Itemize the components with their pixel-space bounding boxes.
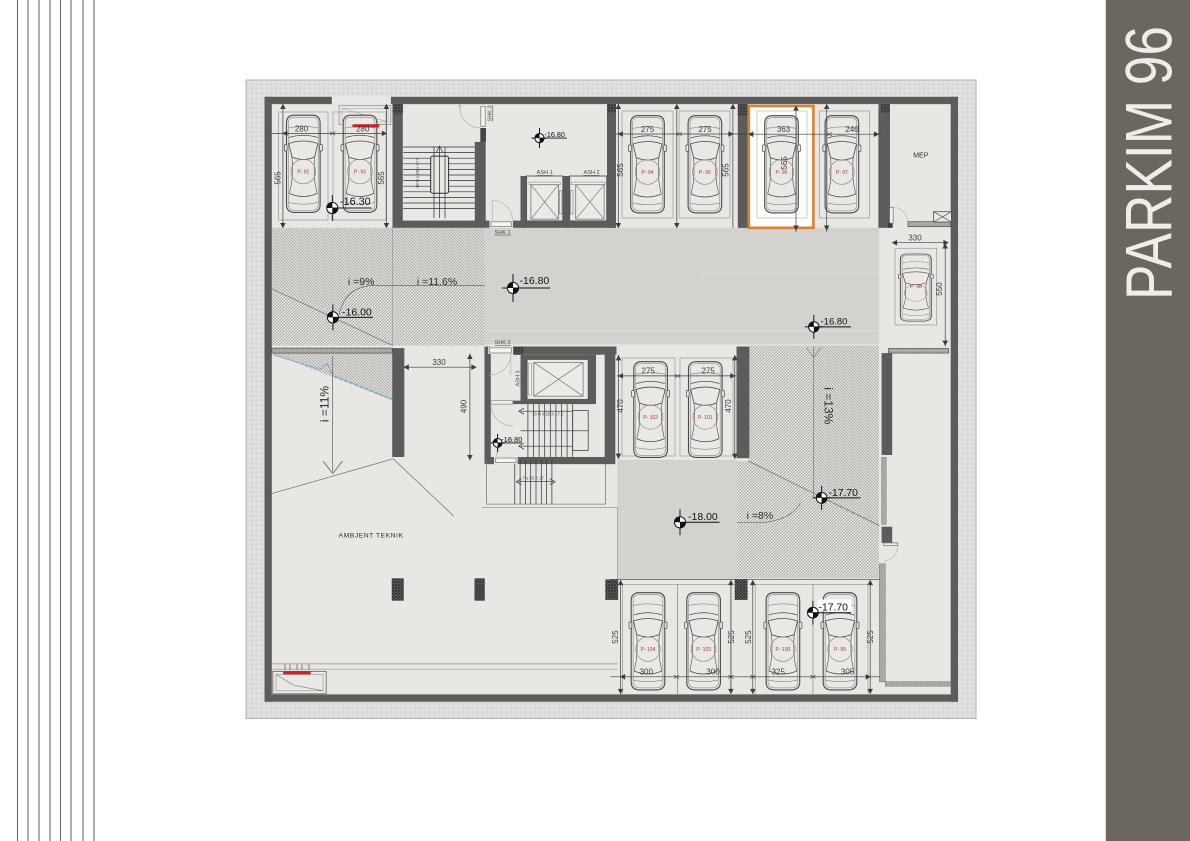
svg-text:ASH 2: ASH 2 [584, 170, 600, 176]
svg-text:P- 95: P- 95 [699, 170, 711, 176]
svg-text:P- 103: P- 103 [696, 647, 711, 653]
svg-text:-17.70: -17.70 [829, 488, 859, 499]
svg-text:325: 325 [772, 668, 786, 677]
svg-text:-18.00: -18.00 [688, 511, 718, 523]
svg-text:550: 550 [935, 282, 944, 296]
svg-text:AMBJENT TEKNIK: AMBJENT TEKNIK [339, 533, 404, 540]
svg-text:565: 565 [616, 163, 625, 177]
svg-text:300: 300 [640, 668, 654, 677]
svg-text:-16.80: -16.80 [545, 130, 565, 139]
svg-text:P- 101: P- 101 [698, 415, 713, 421]
svg-text:525: 525 [744, 630, 753, 644]
svg-text:565: 565 [780, 156, 789, 170]
svg-text:470: 470 [724, 399, 733, 413]
svg-text:7 x 28 X 17: 7 x 28 X 17 [523, 476, 545, 481]
svg-text:18 R x 28 x 17.5: 18 R x 28 x 17.5 [415, 157, 420, 188]
svg-text:275: 275 [642, 367, 656, 376]
svg-text:P- 97: P- 97 [836, 170, 848, 176]
svg-text:490: 490 [459, 399, 468, 413]
svg-text:565: 565 [377, 171, 386, 185]
svg-text:275: 275 [698, 125, 712, 134]
svg-text:525: 525 [866, 630, 875, 644]
svg-text:363: 363 [777, 125, 791, 134]
svg-text:P- 99: P- 99 [834, 647, 846, 653]
svg-text:SHK 1: SHK 1 [495, 230, 511, 236]
svg-text:-16.80: -16.80 [821, 316, 848, 327]
svg-text:-16.00: -16.00 [342, 306, 372, 318]
svg-text:240: 240 [845, 125, 859, 134]
svg-text:ASH 1: ASH 1 [537, 170, 553, 176]
svg-text:P- 93: P- 93 [354, 170, 366, 176]
svg-text:300: 300 [706, 668, 720, 677]
svg-text:470: 470 [616, 399, 625, 413]
svg-text:ASH 3: ASH 3 [516, 370, 522, 386]
svg-text:P- 92: P- 92 [297, 170, 309, 176]
svg-text:i =8%: i =8% [747, 510, 774, 522]
svg-text:SHK 3: SHK 3 [488, 105, 494, 121]
svg-text:SHK 2: SHK 2 [495, 340, 511, 346]
svg-text:-16.80: -16.80 [520, 275, 550, 287]
svg-text:MEP: MEP [913, 153, 929, 160]
svg-text:280: 280 [356, 124, 370, 133]
svg-text:18 R x 28 X 17.5: 18 R x 28 X 17.5 [532, 411, 564, 416]
svg-text:-17.70: -17.70 [819, 602, 849, 613]
svg-text:-16.80: -16.80 [501, 435, 522, 444]
svg-text:-16.30: -16.30 [340, 196, 371, 208]
svg-text:PARKIM 96: PARKIM 96 [1112, 26, 1186, 300]
svg-text:525: 525 [727, 630, 736, 644]
svg-text:P- 98: P- 98 [910, 284, 922, 290]
svg-text:275: 275 [641, 125, 655, 134]
svg-text:P- 94: P- 94 [642, 170, 654, 176]
svg-text:305: 305 [841, 668, 855, 677]
svg-text:i =13%: i =13% [822, 387, 836, 424]
svg-text:i =11%: i =11% [318, 386, 332, 422]
svg-text:i =9%: i =9% [348, 276, 375, 288]
svg-text:525: 525 [611, 630, 620, 644]
svg-text:565: 565 [273, 171, 282, 185]
svg-text:330: 330 [908, 234, 922, 243]
svg-text:P- 102: P- 102 [643, 415, 658, 421]
svg-text:i =11.6%: i =11.6% [417, 276, 457, 288]
svg-text:P- 96: P- 96 [776, 170, 788, 176]
svg-text:565: 565 [722, 163, 731, 177]
svg-text:P- 104: P- 104 [641, 647, 656, 653]
svg-text:330: 330 [432, 358, 446, 367]
svg-text:P- 100: P- 100 [776, 647, 791, 653]
svg-text:275: 275 [702, 367, 716, 376]
svg-text:280: 280 [295, 124, 309, 133]
